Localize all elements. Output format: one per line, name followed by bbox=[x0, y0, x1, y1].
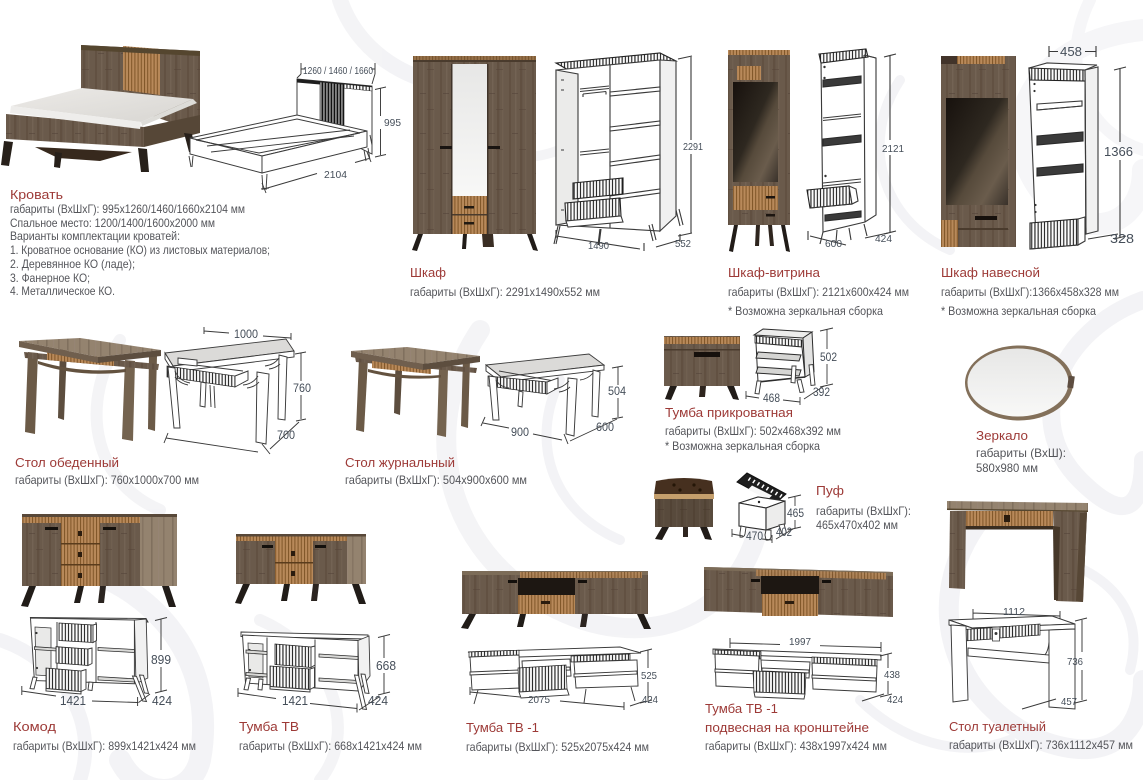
svg-text:Комод: Комод bbox=[13, 719, 56, 734]
svg-text:465х470х402 мм: 465х470х402 мм bbox=[816, 518, 898, 532]
svg-text:600: 600 bbox=[825, 238, 842, 250]
svg-text:Шкаф навесной: Шкаф навесной bbox=[941, 265, 1040, 280]
svg-text:465: 465 bbox=[787, 506, 804, 520]
svg-text:600: 600 bbox=[596, 420, 614, 434]
svg-text:1366: 1366 bbox=[1104, 145, 1133, 159]
svg-text:468: 468 bbox=[763, 391, 780, 405]
svg-text:Варианты комплектации кроватей: Варианты комплектации кроватей: bbox=[10, 229, 180, 243]
svg-text:525: 525 bbox=[641, 670, 657, 682]
svg-text:габариты (ВхШхГ): 899х1421х424: габариты (ВхШхГ): 899х1421х424 мм bbox=[13, 739, 196, 753]
svg-text:668: 668 bbox=[376, 659, 396, 673]
svg-text:700: 700 bbox=[277, 428, 295, 442]
svg-text:2075: 2075 bbox=[528, 694, 550, 706]
svg-text:Стол журнальный: Стол журнальный bbox=[345, 455, 455, 470]
svg-text:3. Фанерное КО;: 3. Фанерное КО; bbox=[10, 271, 90, 285]
svg-text:* Возможна зеркальная сборка: * Возможна зеркальная сборка bbox=[665, 439, 820, 453]
svg-text:392: 392 bbox=[813, 385, 830, 399]
svg-text:Тумба ТВ: Тумба ТВ bbox=[239, 719, 299, 734]
svg-text:995: 995 bbox=[384, 117, 401, 129]
svg-text:габариты (ВхШхГ):1366х458х328: габариты (ВхШхГ):1366х458х328 мм bbox=[941, 285, 1119, 299]
svg-text:габариты (ВхШхГ): 2121х600х424: габариты (ВхШхГ): 2121х600х424 мм bbox=[728, 285, 909, 299]
svg-text:760: 760 bbox=[293, 381, 311, 395]
svg-text:габариты (ВхШхГ):: габариты (ВхШхГ): bbox=[816, 504, 911, 518]
svg-text:габариты (ВхШхГ): 438х1997х424: габариты (ВхШхГ): 438х1997х424 мм bbox=[705, 739, 887, 753]
svg-text:* Возможна зеркальная сборка: * Возможна зеркальная сборка bbox=[728, 304, 883, 318]
svg-text:габариты (ВхШ):: габариты (ВхШ): bbox=[976, 446, 1066, 460]
svg-text:Стол туалетный: Стол туалетный bbox=[949, 719, 1046, 734]
svg-text:Кровать: Кровать bbox=[10, 187, 63, 202]
svg-text:габариты (ВхШхГ): 995х1260/146: габариты (ВхШхГ): 995х1260/1460/1660х210… bbox=[10, 202, 245, 216]
svg-text:552: 552 bbox=[675, 238, 691, 250]
svg-text:Стол обеденный: Стол обеденный bbox=[15, 455, 119, 470]
svg-text:2121: 2121 bbox=[882, 143, 904, 155]
svg-text:1490: 1490 bbox=[588, 240, 609, 252]
svg-text:457: 457 bbox=[1061, 696, 1077, 708]
svg-text:Пуф: Пуф bbox=[816, 483, 844, 498]
svg-text:1421: 1421 bbox=[60, 694, 86, 708]
svg-text:1. Кроватное основание (КО) из: 1. Кроватное основание (КО) из листовых … bbox=[10, 243, 270, 257]
svg-text:габариты (ВхШхГ): 736х1112х457: габариты (ВхШхГ): 736х1112х457 мм bbox=[949, 738, 1133, 752]
svg-text:1260 / 1460 / 1660: 1260 / 1460 / 1660 bbox=[303, 65, 373, 77]
svg-text:1421: 1421 bbox=[282, 694, 308, 708]
svg-text:габариты (ВхШхГ): 502х468х392: габариты (ВхШхГ): 502х468х392 мм bbox=[665, 424, 841, 438]
svg-text:424: 424 bbox=[642, 694, 658, 706]
svg-text:Зеркало: Зеркало bbox=[976, 428, 1028, 443]
svg-text:Тумба ТВ -1: Тумба ТВ -1 bbox=[705, 701, 778, 716]
svg-text:424: 424 bbox=[887, 694, 903, 706]
svg-text:328: 328 bbox=[1110, 232, 1134, 246]
svg-text:габариты (ВхШхГ): 760х1000х700: габариты (ВхШхГ): 760х1000х700 мм bbox=[15, 473, 199, 487]
svg-text:2. Деревянное КО (ладе);: 2. Деревянное КО (ладе); bbox=[10, 257, 135, 271]
svg-text:Спальное место: 1200/1400/1600: Спальное место: 1200/1400/1600х2000 мм bbox=[10, 216, 215, 230]
svg-text:899: 899 bbox=[151, 653, 171, 667]
svg-text:2291: 2291 bbox=[683, 141, 703, 153]
svg-text:504: 504 bbox=[608, 384, 626, 398]
svg-text:900: 900 bbox=[511, 425, 529, 439]
svg-text:габариты (ВхШхГ): 2291х1490х55: габариты (ВхШхГ): 2291х1490х552 мм bbox=[410, 285, 600, 299]
svg-text:438: 438 bbox=[884, 669, 900, 681]
svg-text:424: 424 bbox=[875, 233, 892, 245]
svg-text:736: 736 bbox=[1067, 656, 1083, 668]
svg-text:подвесная на кронштейне: подвесная на кронштейне bbox=[705, 720, 869, 735]
svg-text:470: 470 bbox=[746, 529, 763, 543]
svg-text:1112: 1112 bbox=[1003, 606, 1025, 618]
svg-text:Тумба ТВ -1: Тумба ТВ -1 bbox=[466, 720, 539, 735]
svg-text:габариты (ВхШхГ): 525х2075х424: габариты (ВхШхГ): 525х2075х424 мм bbox=[466, 740, 649, 754]
svg-text:Шкаф-витрина: Шкаф-витрина bbox=[728, 265, 821, 280]
svg-text:424: 424 bbox=[368, 694, 388, 708]
svg-text:1997: 1997 bbox=[789, 636, 811, 648]
svg-text:габариты (ВхШхГ): 504х900х600: габариты (ВхШхГ): 504х900х600 мм bbox=[345, 473, 527, 487]
svg-text:2104: 2104 bbox=[324, 169, 347, 181]
svg-text:габариты (ВхШхГ): 668х1421х424: габариты (ВхШхГ): 668х1421х424 мм bbox=[239, 739, 422, 753]
svg-text:580х980 мм: 580х980 мм bbox=[976, 461, 1038, 475]
svg-text:402: 402 bbox=[776, 527, 792, 539]
svg-text:Тумба прикроватная: Тумба прикроватная bbox=[665, 405, 793, 420]
svg-text:502: 502 bbox=[820, 350, 837, 364]
svg-text:4. Металлическое КО.: 4. Металлическое КО. bbox=[10, 284, 115, 298]
svg-text:424: 424 bbox=[152, 694, 172, 708]
svg-text:458: 458 bbox=[1060, 45, 1082, 59]
svg-text:* Возможна зеркальная сборка: * Возможна зеркальная сборка bbox=[941, 304, 1096, 318]
svg-text:Шкаф: Шкаф bbox=[410, 265, 446, 280]
svg-text:1000: 1000 bbox=[234, 327, 258, 341]
